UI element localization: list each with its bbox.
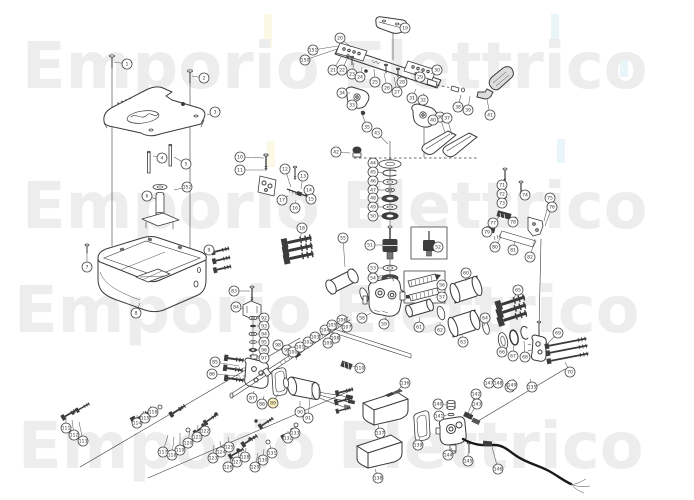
callout-number: 88 xyxy=(259,402,265,408)
callout-number: 22 xyxy=(339,68,345,74)
callout-number: 116 xyxy=(149,410,158,416)
callout-number: 151 xyxy=(309,48,318,54)
callout-3: 3 xyxy=(207,107,220,117)
callout-number: 58 xyxy=(359,316,365,322)
callout-number: 117 xyxy=(159,450,168,456)
callout-number: 11 xyxy=(237,168,243,174)
callout-number: 86 xyxy=(209,372,215,378)
callout-number: 53 xyxy=(370,266,376,272)
callout-number: 119 xyxy=(176,448,185,454)
callout-number: 1 xyxy=(126,62,129,68)
callout-number: 73 xyxy=(499,201,505,207)
callout-number: 5 xyxy=(185,162,188,168)
callout-5: 5 xyxy=(174,157,191,169)
callout-number: 75 xyxy=(547,196,553,202)
callout-number: 60 xyxy=(463,271,469,277)
callout-number: 80 xyxy=(492,245,498,251)
callout-number: 2 xyxy=(203,76,206,82)
callout-number: 66 xyxy=(499,350,505,356)
callout-number: 137 xyxy=(376,431,385,437)
callout-number: 31 xyxy=(409,96,415,102)
callout-number: 115 xyxy=(141,416,150,422)
callout-number: 87 xyxy=(249,396,255,402)
callout-number: 126 xyxy=(224,465,233,471)
callout-number: 129 xyxy=(251,465,260,471)
callout-number: 135 xyxy=(528,385,537,391)
callout-140: 140 xyxy=(433,399,446,409)
callout-number: 146 xyxy=(494,467,503,473)
callout-number: 9 xyxy=(208,248,211,254)
callout-116: 116 xyxy=(148,406,158,417)
callout-number: 7 xyxy=(86,265,89,271)
callout-number: 90 xyxy=(297,410,303,416)
callout-number: 133 xyxy=(291,431,300,437)
callout-number: 30 xyxy=(434,68,440,74)
callout-number: 3 xyxy=(214,110,217,116)
callout-number: 56 xyxy=(439,283,445,289)
callout-number: 141 xyxy=(435,414,444,420)
callout-40: 40 xyxy=(428,115,438,125)
callout-number: 67 xyxy=(510,354,516,360)
callout-149: 149 xyxy=(507,380,517,390)
callout-number: 52 xyxy=(435,245,441,251)
callout-number: 20 xyxy=(337,36,343,42)
callout-number: 42 xyxy=(333,150,339,156)
callout-number: 82 xyxy=(527,255,533,261)
callout-number: 68 xyxy=(522,355,528,361)
callout-147: 147 xyxy=(484,378,494,388)
callout-53: 53 xyxy=(368,263,384,273)
callout-55: 55 xyxy=(338,233,348,267)
callout-number: 4 xyxy=(161,156,164,162)
callout-number: 150 xyxy=(301,58,310,64)
callout-number: 140 xyxy=(434,402,443,408)
callout-number: 49 xyxy=(370,205,376,211)
callout-number: 83 xyxy=(231,289,237,295)
callout-number: 46 xyxy=(370,179,376,185)
callout-number: 19 xyxy=(402,26,408,32)
callout-number: 39 xyxy=(465,108,471,114)
callout-number: 85 xyxy=(212,360,218,366)
callout-136: 136 xyxy=(397,378,410,391)
callout-number: 43 xyxy=(374,131,380,137)
callout-number: 98 xyxy=(275,343,281,349)
callout-number: 148 xyxy=(494,381,503,387)
callout-number: 107 xyxy=(343,325,352,331)
callout-number: 125 xyxy=(225,445,234,451)
callout-number: 152 xyxy=(183,185,192,191)
axis-knob xyxy=(353,147,362,158)
callout-number: 128 xyxy=(241,455,250,461)
callout-number: 10 xyxy=(237,155,243,161)
callout-110: 110 xyxy=(352,363,365,373)
callout-15: 15 xyxy=(306,194,316,204)
callout-number: 120 xyxy=(184,441,193,447)
callout-number: 121 xyxy=(193,435,202,441)
callout-number: 143 xyxy=(473,402,482,408)
callout-number: 16 xyxy=(292,206,298,212)
callout-number: 57 xyxy=(439,295,445,301)
callout-107: 107 xyxy=(342,322,352,332)
callout-78: 78 xyxy=(508,217,518,227)
callout-10: 10 xyxy=(235,152,264,162)
callout-number: 131 xyxy=(268,451,277,457)
callout-number: 12 xyxy=(282,167,288,173)
callout-number: 54 xyxy=(370,276,376,282)
callout-number: 79 xyxy=(484,230,490,236)
callout-7: 7 xyxy=(82,253,92,272)
callout-148: 148 xyxy=(493,378,503,388)
callout-number: 97 xyxy=(261,356,267,362)
callout-number: 144 xyxy=(444,453,453,459)
callout-number: 18 xyxy=(299,226,305,232)
callout-number: 139 xyxy=(414,443,423,449)
callout-number: 65 xyxy=(515,288,521,294)
callout-number: 112 xyxy=(70,433,79,439)
callout-66: 66 xyxy=(497,347,507,357)
callout-number: 13 xyxy=(300,174,306,180)
callout-number: 41 xyxy=(487,113,493,119)
callout-number: 45 xyxy=(370,170,376,176)
callout-number: 15 xyxy=(308,197,314,203)
callout-90: 90 xyxy=(295,401,305,417)
callout-135: 135 xyxy=(527,379,537,392)
callout-number: 136 xyxy=(401,381,410,387)
callout-number: 76 xyxy=(549,205,555,211)
callout-number: 21 xyxy=(330,68,336,74)
callout-number: 78 xyxy=(510,220,516,226)
callout-number: 28 xyxy=(399,80,405,86)
callout-88: 88 xyxy=(257,396,267,409)
callout-number: 103 xyxy=(311,335,320,341)
callout-number: 40 xyxy=(430,118,436,124)
callout-number: 29 xyxy=(417,75,423,81)
callout-number: 63 xyxy=(460,340,466,346)
callout-number: 59 xyxy=(381,322,387,328)
callout-number: 142 xyxy=(472,392,481,398)
pedal-plates xyxy=(422,131,477,157)
callout-number: 44 xyxy=(370,161,376,167)
callout-number: 24 xyxy=(357,75,363,81)
callout-number: 14 xyxy=(306,188,312,194)
callout-87: 87 xyxy=(247,391,257,403)
callout-42: 42 xyxy=(331,147,350,157)
callout-number: 64 xyxy=(482,316,488,322)
callout-number: 145 xyxy=(464,459,473,465)
callout-number: 32 xyxy=(420,98,426,104)
callout-number: 8 xyxy=(135,311,138,317)
callout-number: 6 xyxy=(146,194,149,200)
callout-number: 109 xyxy=(324,341,333,347)
callout-number: 110 xyxy=(356,366,365,372)
callout-number: 77 xyxy=(490,221,496,227)
callout-number: 55 xyxy=(340,236,346,242)
callout-109: 109 xyxy=(323,338,333,348)
callout-52: 52 xyxy=(433,242,443,252)
callout-number: 35 xyxy=(364,125,370,131)
callout-number: 74 xyxy=(522,193,528,199)
callout-number: 51 xyxy=(367,243,373,249)
callout-number: 70 xyxy=(567,370,573,376)
callout-79: 79 xyxy=(482,227,492,237)
callout-14: 14 xyxy=(304,185,314,195)
callout-number: 111 xyxy=(62,426,71,432)
callout-number: 48 xyxy=(370,196,376,202)
callout-43: 43 xyxy=(372,128,388,144)
callout-number: 71 xyxy=(499,183,505,189)
callout-number: 27 xyxy=(394,90,400,96)
callout-4: 4 xyxy=(153,153,167,163)
callout-number: 72 xyxy=(499,192,505,198)
callout-number: 91 xyxy=(305,416,311,422)
highlight-mark xyxy=(557,139,565,163)
motor-unit xyxy=(283,360,355,408)
callout-number: 23 xyxy=(349,72,355,78)
callout-number: 38 xyxy=(455,105,461,111)
exploded-parts-diagram: Emporio ElettricoEmporio ElettricoEmpori… xyxy=(0,0,694,500)
callout-number: 147 xyxy=(485,381,494,387)
callout-number: 138 xyxy=(374,476,383,482)
callout-number: 105 xyxy=(328,323,337,329)
callout-number: 17 xyxy=(279,198,285,204)
callout-74: 74 xyxy=(520,190,530,200)
callout-56: 56 xyxy=(437,280,447,290)
callout-number: 130 xyxy=(259,458,268,464)
callout-number: 37 xyxy=(444,116,450,122)
callout-number: 62 xyxy=(437,328,443,334)
callout-number: 122 xyxy=(201,429,210,435)
callout-number: 26 xyxy=(384,86,390,92)
callout-57: 57 xyxy=(437,292,447,302)
callout-number: 84 xyxy=(233,305,239,311)
callout-number: 61 xyxy=(416,325,422,331)
callout-number: 25 xyxy=(372,80,378,86)
callout-number: 50 xyxy=(370,214,376,220)
callout-70: 70 xyxy=(565,362,575,377)
callout-44: 44 xyxy=(368,158,380,168)
callout-number: 123 xyxy=(209,456,218,462)
parts-diagram-canvas: Emporio ElettricoEmporio ElettricoEmpori… xyxy=(0,0,694,500)
callout-number: 33 xyxy=(349,103,355,109)
callout-number: 149 xyxy=(508,383,517,389)
callout-number: 89 xyxy=(270,401,276,407)
callout-number: 81 xyxy=(510,248,516,254)
callout-number: 34 xyxy=(339,91,345,97)
watermark-text: Emporio Elettrico xyxy=(18,410,644,484)
callout-number: 69 xyxy=(555,331,561,337)
callout-number: 113 xyxy=(79,439,88,445)
